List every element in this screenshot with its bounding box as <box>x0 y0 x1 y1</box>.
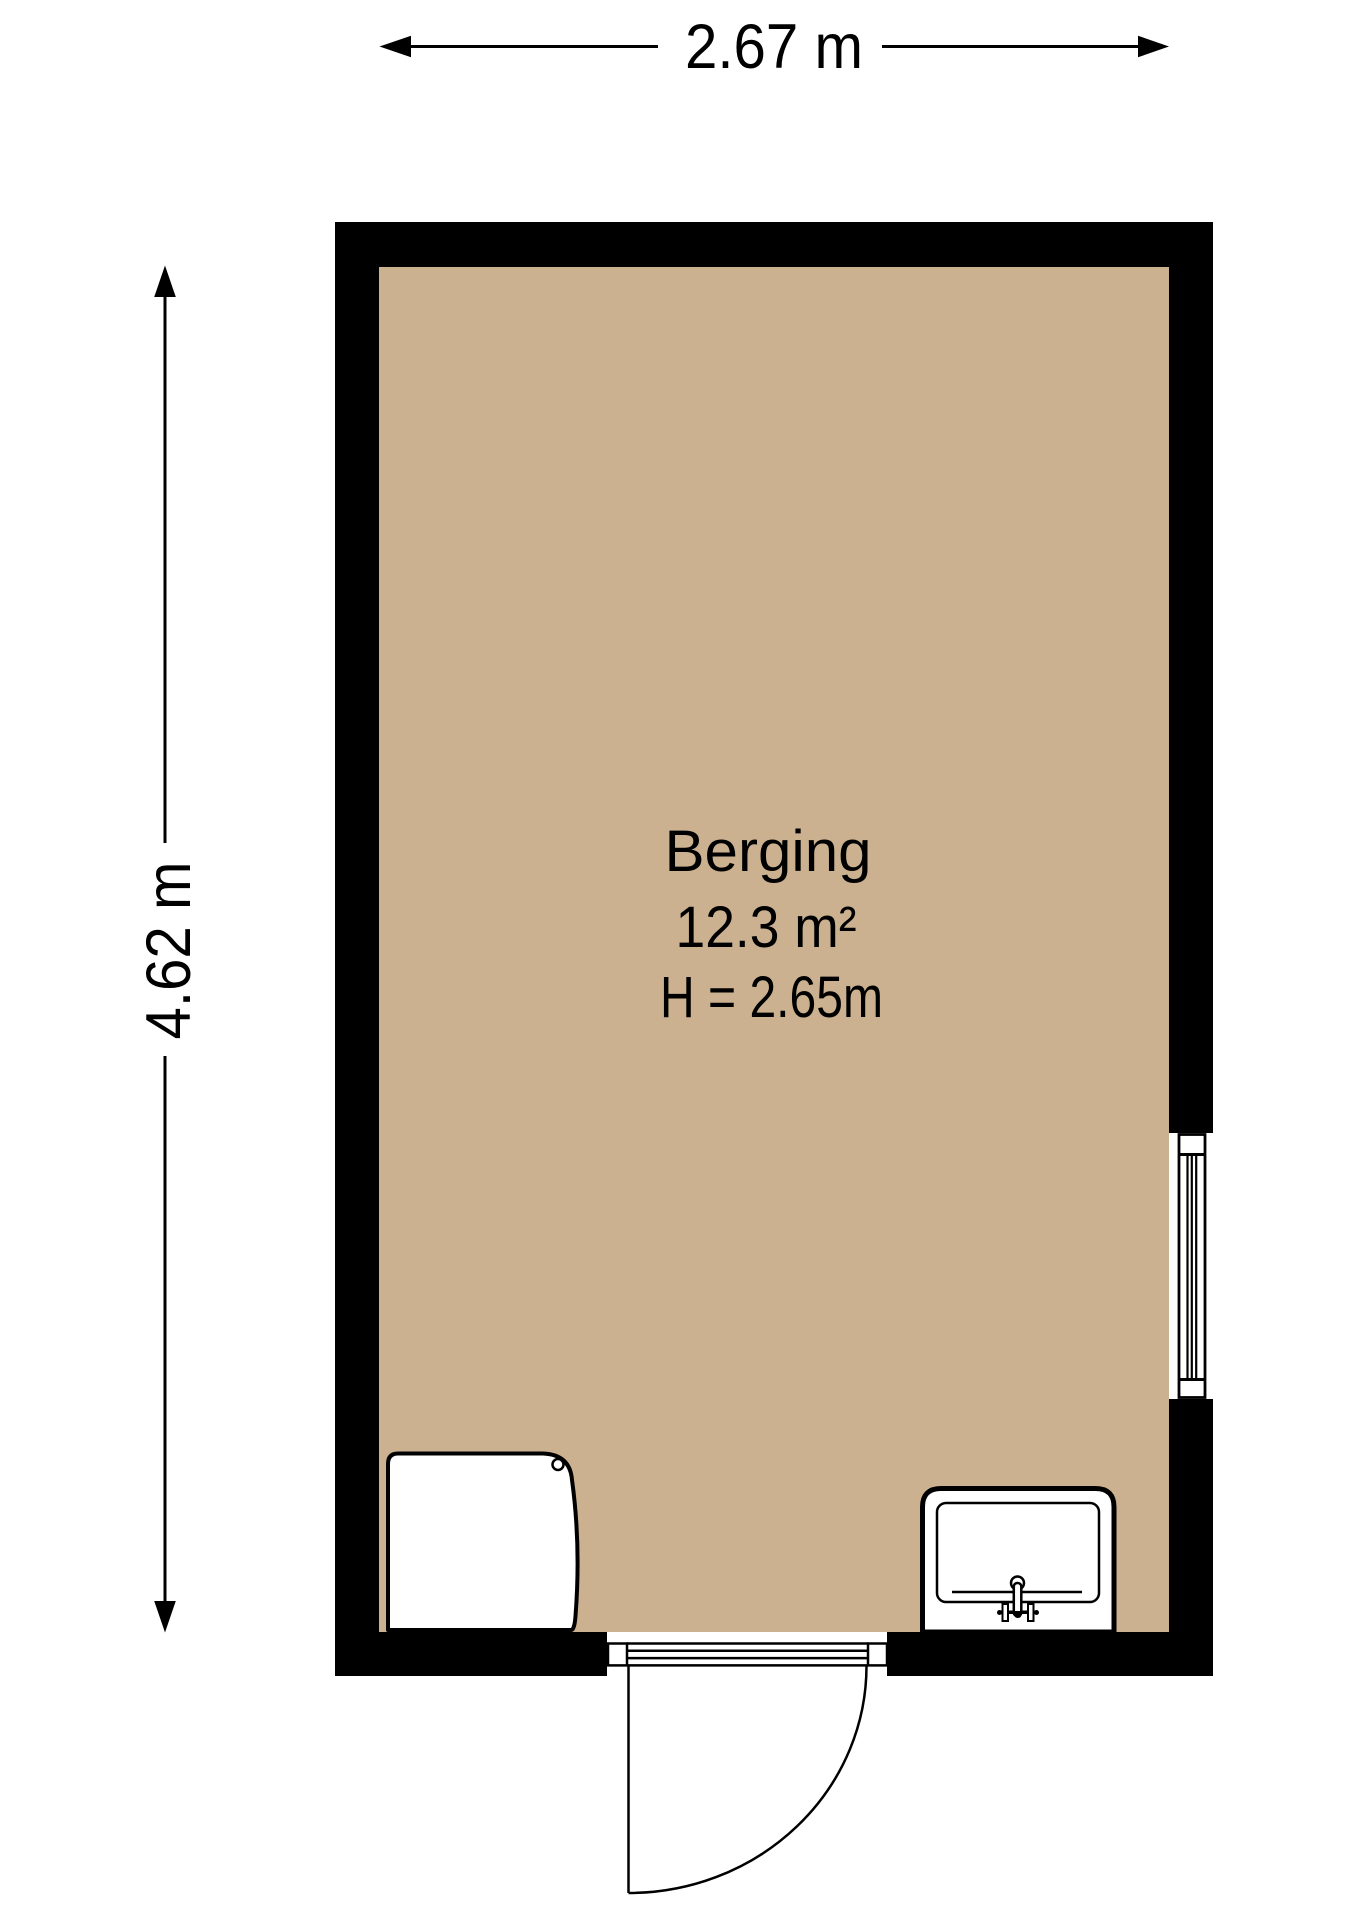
svg-text:2.67 m: 2.67 m <box>685 12 863 82</box>
svg-text:4.62 m: 4.62 m <box>134 862 204 1040</box>
svg-text:H = 2.65m: H = 2.65m <box>660 965 883 1030</box>
svg-text:12.3 m²: 12.3 m² <box>676 895 857 960</box>
svg-text:Berging: Berging <box>665 819 872 884</box>
